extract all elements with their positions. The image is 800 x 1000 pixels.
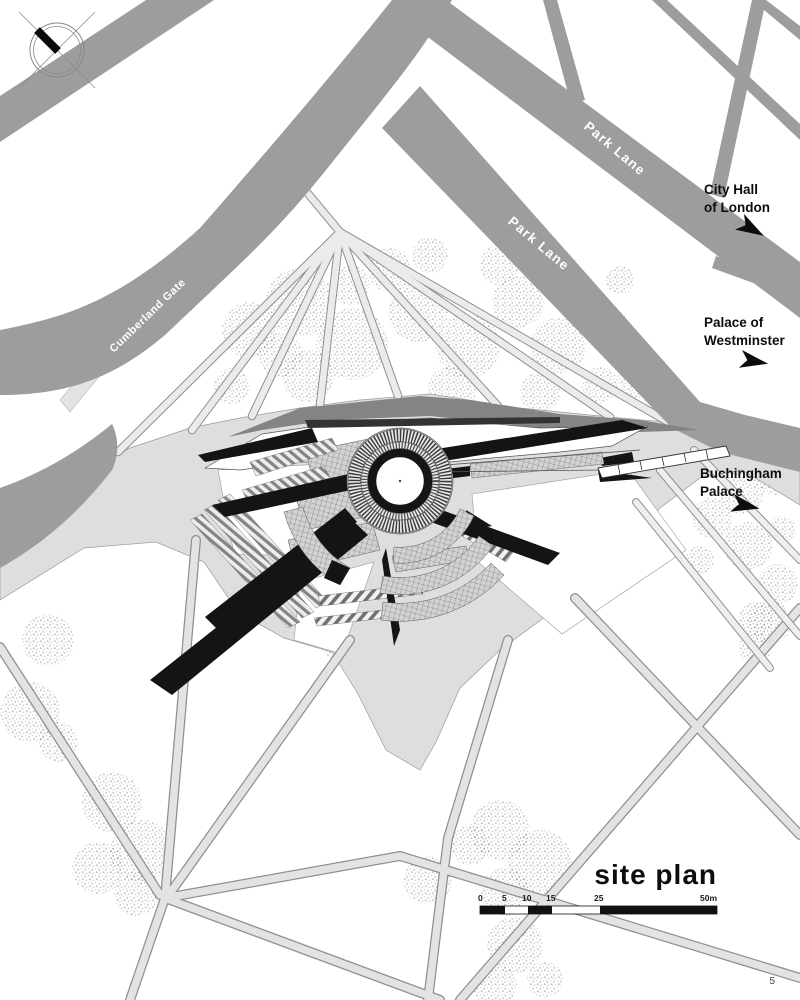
site-plan-map: Park Lane Park Lane Cumberland Gate N Ca… [0,0,800,1000]
scale-tick-50m: 50m [700,893,717,903]
road-top-left [0,0,214,142]
city-hall-label-line1: City Hall [704,182,758,197]
scale-tick-5: 5 [502,893,507,903]
page-number: 5 [769,976,775,987]
westminster-arrow-icon [739,350,770,373]
scale-tick-15: 15 [546,893,556,903]
scale-tick-0: 0 [478,893,483,903]
westminster-label-line1: Palace of [704,315,764,330]
drawing-title: site plan [594,859,717,890]
scale-tick-10: 10 [522,893,532,903]
landmark-westminster: Palace of Westminster [704,315,786,373]
rotunda [347,428,453,534]
site-plan-page: Park Lane Park Lane Cumberland Gate N Ca… [0,0,800,1000]
buckingham-label-line1: Buchingham [700,466,782,481]
westminster-label-line2: Westminster [704,333,786,348]
compass-icon [19,12,95,88]
scale-tick-25: 25 [594,893,604,903]
city-hall-label-line2: of London [704,200,770,215]
